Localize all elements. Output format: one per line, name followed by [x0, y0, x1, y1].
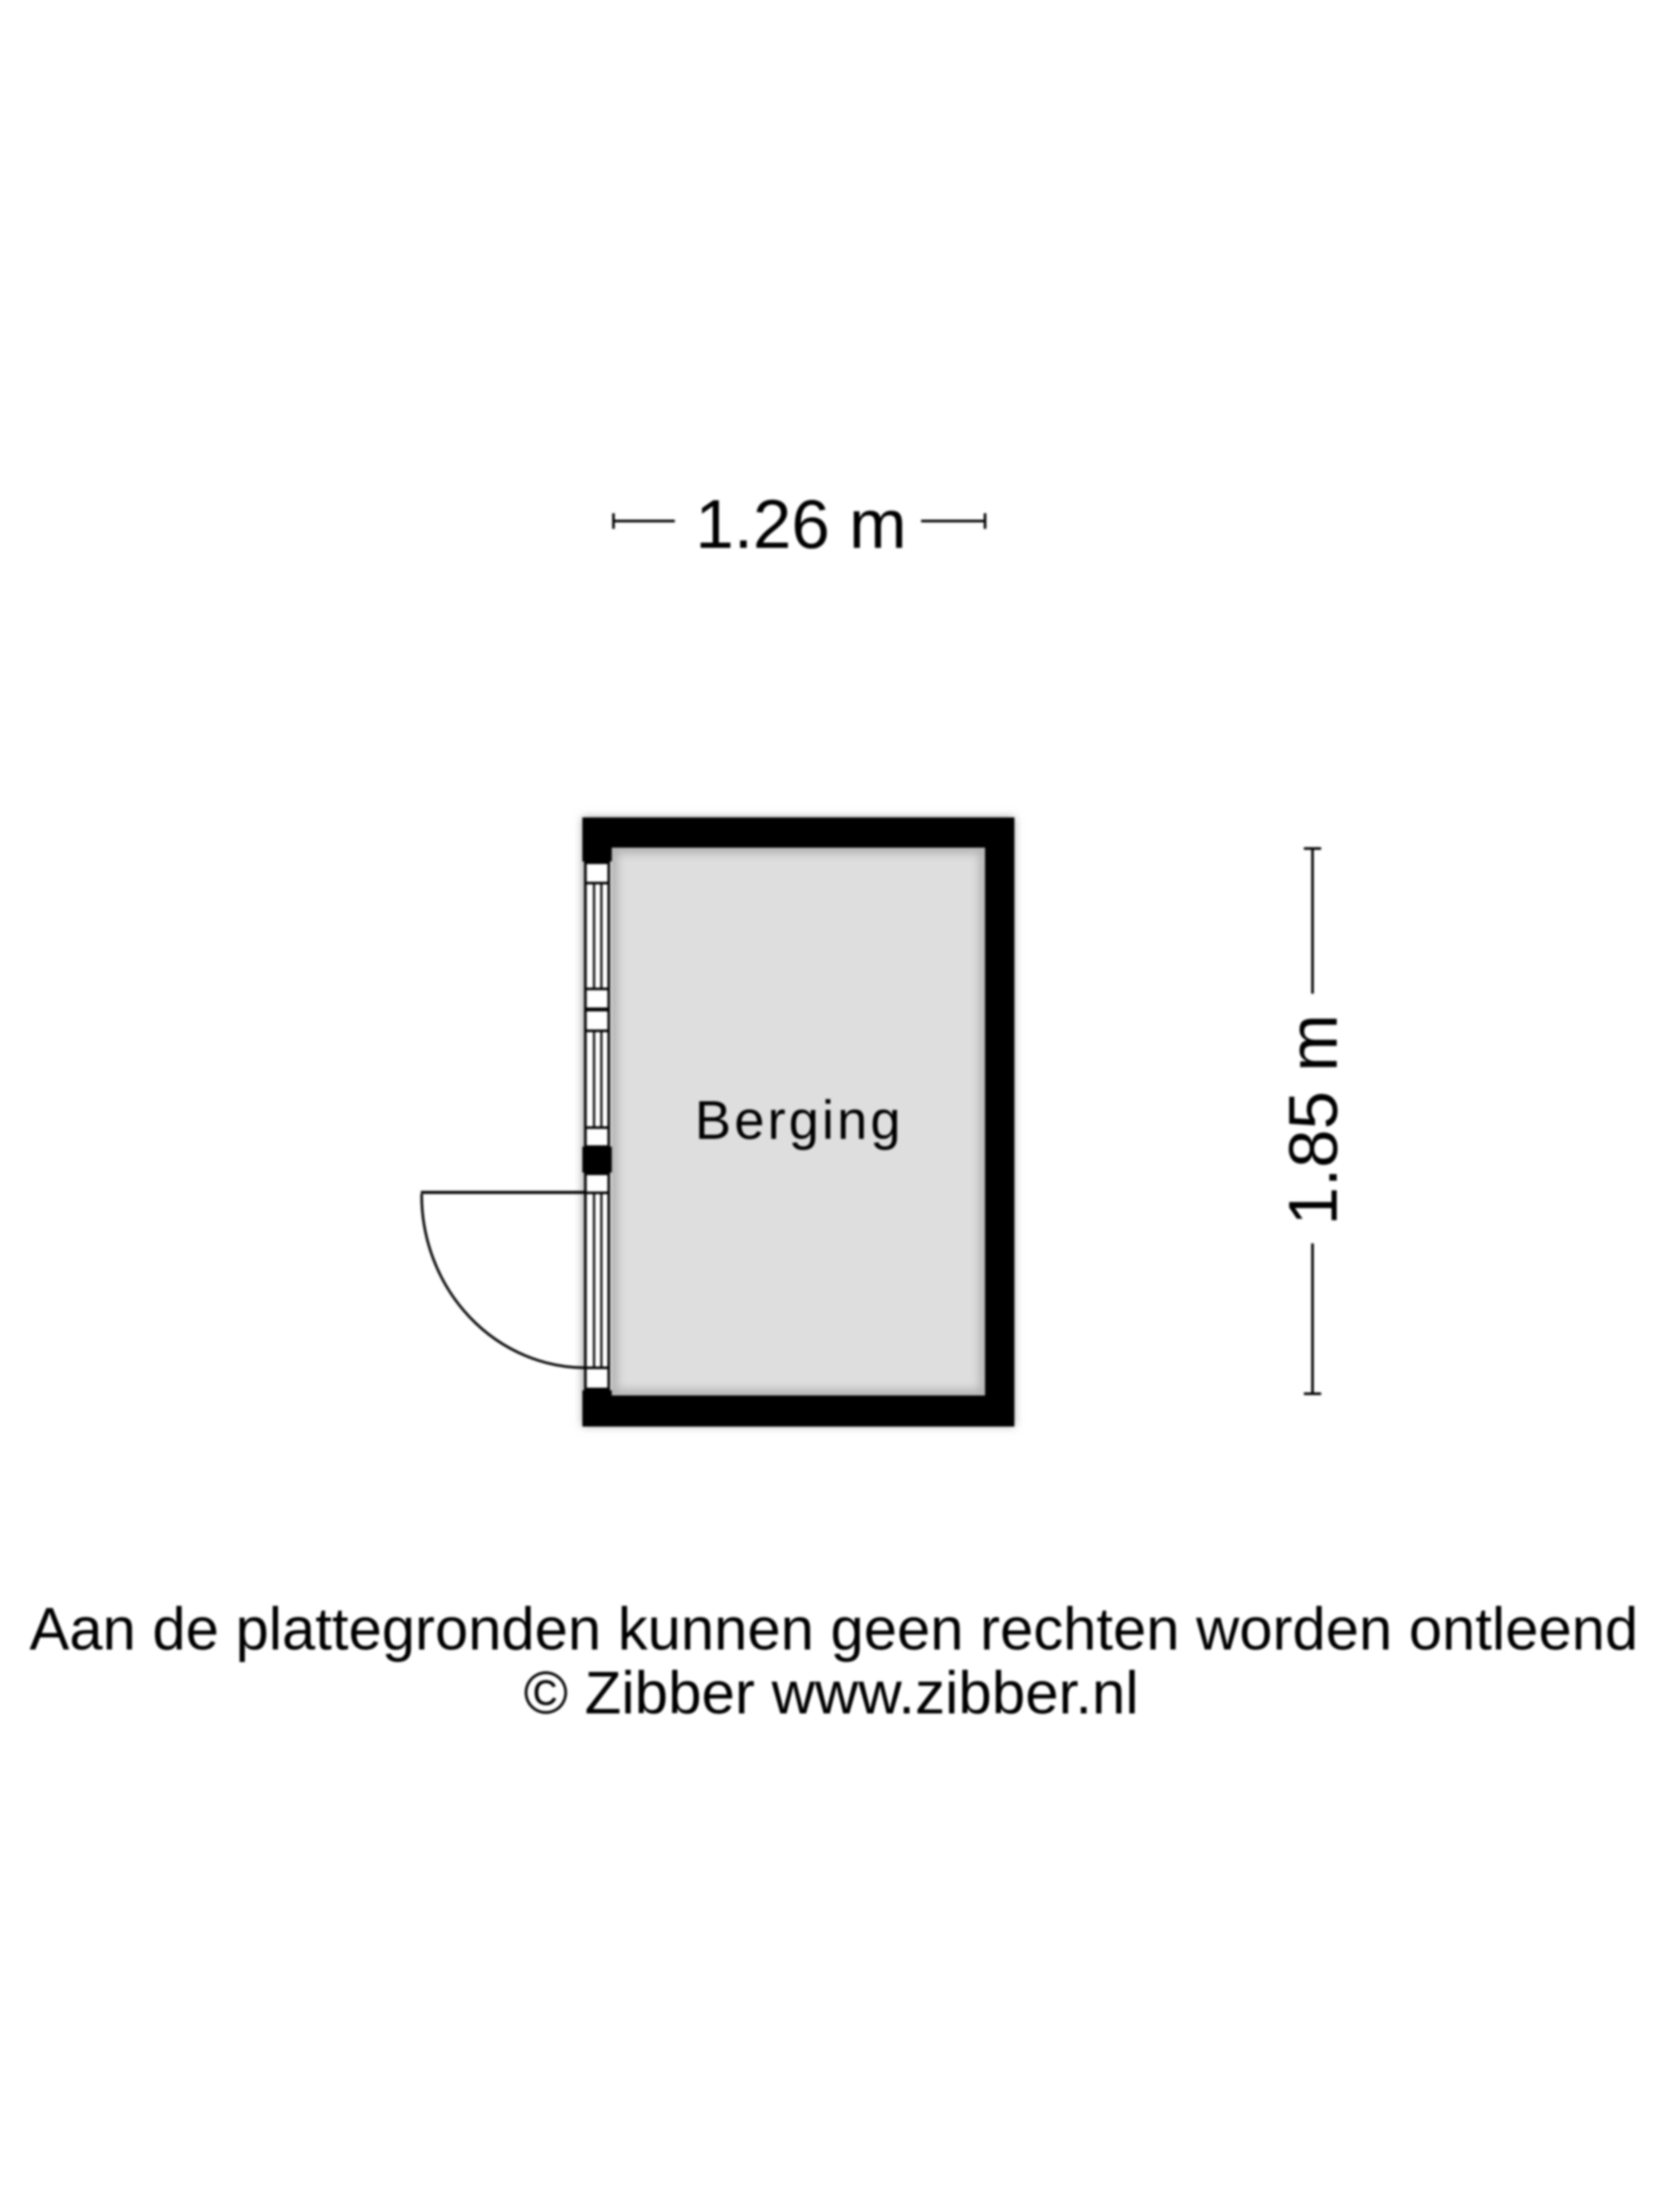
svg-text:1.26 m: 1.26 m: [696, 486, 907, 563]
svg-text:© Zibber www.zibber.nl: © Zibber www.zibber.nl: [524, 1659, 1139, 1726]
svg-text:Aan de plattegronden kunnen ge: Aan de plattegronden kunnen geen rechten…: [29, 1595, 1638, 1662]
svg-text:Berging: Berging: [695, 1090, 904, 1151]
svg-text:1.85 m: 1.85 m: [1274, 1014, 1351, 1226]
